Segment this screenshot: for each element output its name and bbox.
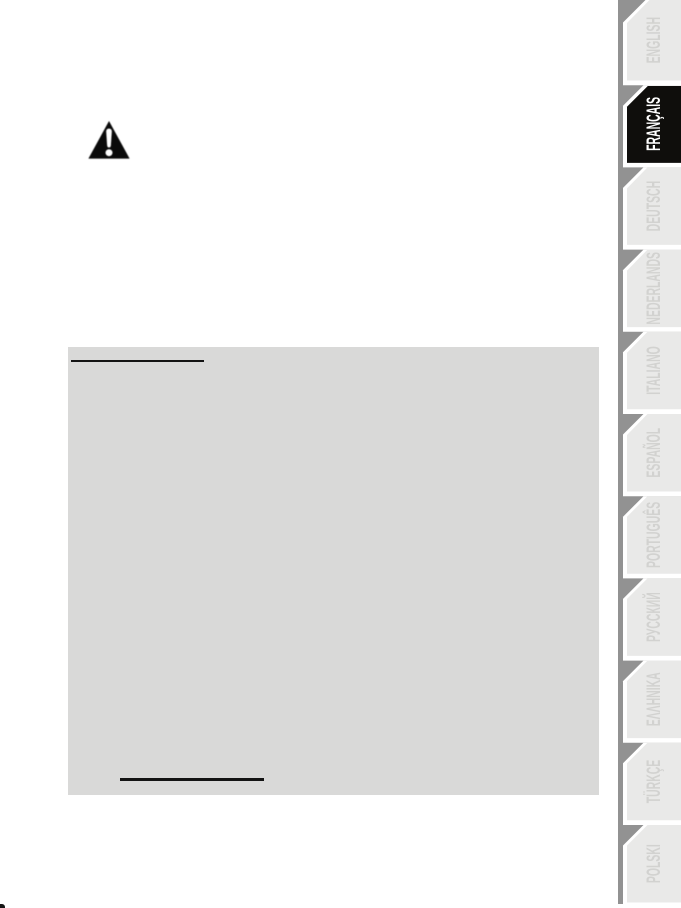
svg-text:ΕΛΛΗΝΙΚΑ: ΕΛΛΗΝΙΚΑ: [644, 672, 665, 726]
svg-text:ITALIANO: ITALIANO: [644, 346, 665, 395]
svg-text:РУССКИЙ: РУССКИЙ: [642, 592, 664, 642]
svg-text:DEUTSCH: DEUTSCH: [644, 181, 665, 231]
svg-text:POLSKI: POLSKI: [644, 844, 665, 883]
svg-text:ESPAÑOL: ESPAÑOL: [642, 428, 664, 478]
svg-text:PORTUGUÊS: PORTUGUÊS: [642, 502, 664, 568]
svg-text:TÜRKÇE: TÜRKÇE: [644, 760, 665, 804]
svg-text:NEDERLANDS: NEDERLANDS: [644, 252, 665, 325]
svg-text:FRANÇAIS: FRANÇAIS: [644, 97, 665, 151]
svg-text:ENGLISH: ENGLISH: [644, 17, 665, 63]
